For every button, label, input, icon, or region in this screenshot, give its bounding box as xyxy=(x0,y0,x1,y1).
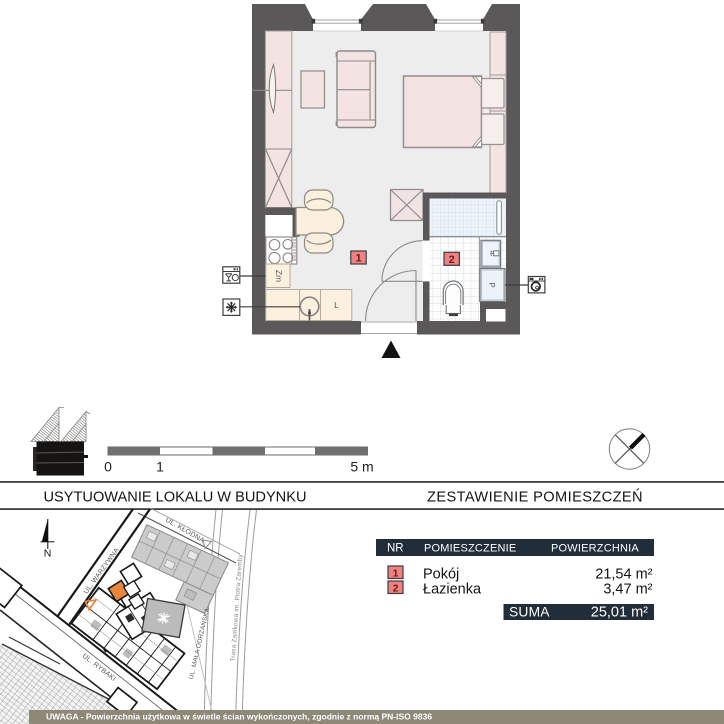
svg-text:Zm: Zm xyxy=(274,270,284,282)
svg-text:5 m: 5 m xyxy=(350,459,373,475)
svg-text:UWAGA - Powierzchnia użytkowa: UWAGA - Powierzchnia użytkowa w świetle … xyxy=(46,712,432,722)
svg-text:NR: NR xyxy=(387,543,404,555)
svg-text:POMIESZCZENIE: POMIESZCZENIE xyxy=(424,543,516,555)
svg-text:21,54 m²: 21,54 m² xyxy=(595,567,652,583)
svg-text:ZESTAWIENIE POMIESZCZEŃ: ZESTAWIENIE POMIESZCZEŃ xyxy=(427,489,643,506)
svg-text:25,01 m²: 25,01 m² xyxy=(591,605,648,621)
svg-text:1: 1 xyxy=(393,568,399,580)
svg-text:POWIERZCHNIA: POWIERZCHNIA xyxy=(551,543,639,555)
svg-text:0: 0 xyxy=(104,459,112,475)
svg-text:L: L xyxy=(334,300,339,310)
svg-text:SUMA: SUMA xyxy=(509,605,550,620)
svg-text:3,47 m²: 3,47 m² xyxy=(603,582,652,598)
svg-text:1: 1 xyxy=(156,459,164,475)
svg-text:P: P xyxy=(487,282,496,287)
svg-text:2: 2 xyxy=(449,254,455,266)
svg-text:2: 2 xyxy=(393,583,399,595)
svg-text:1: 1 xyxy=(355,253,361,265)
svg-text:N: N xyxy=(44,548,52,560)
svg-text:Pokój: Pokój xyxy=(423,567,459,583)
svg-text:Łazienka: Łazienka xyxy=(423,582,482,598)
svg-text:USYTUOWANIE LOKALU W BUDYNKU: USYTUOWANIE LOKALU W BUDYNKU xyxy=(44,490,307,506)
